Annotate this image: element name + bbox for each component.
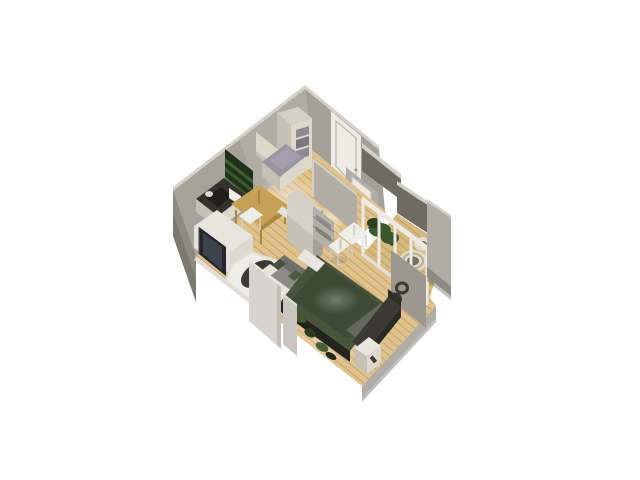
apartment-render [0,0,640,480]
entry-door-handle [355,169,358,172]
floorplan-canvas [0,0,640,480]
door-post [378,214,381,268]
kettle [205,191,213,197]
panel-edge-shade [277,284,281,349]
bed-highlight [312,286,360,314]
door-post [362,199,365,255]
